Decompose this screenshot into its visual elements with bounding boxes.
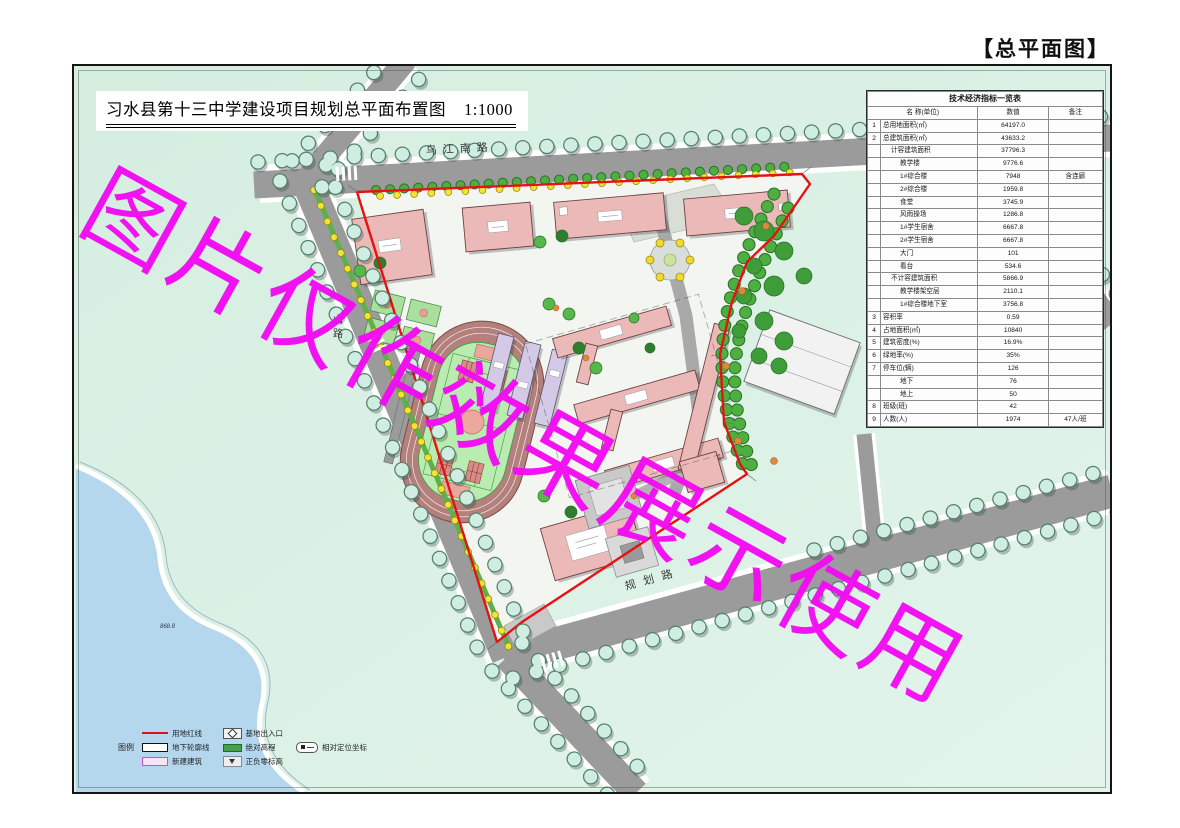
absolute-elevation-symbol — [223, 744, 242, 752]
site-entrance-symbol — [223, 728, 242, 739]
table-title-row: 技术经济指标一览表 — [868, 92, 1103, 107]
table-row: 2#综合楼1959.8 — [868, 183, 1103, 196]
table-row: 地上50 — [868, 388, 1103, 401]
legend-item-zero-level: 正负零标高 — [223, 754, 284, 768]
table-row: 1总用地面积(㎡)64197.0 — [868, 119, 1103, 132]
legend-title: 图例 — [118, 742, 134, 753]
table-row: 教学楼架空层2110.1 — [868, 286, 1103, 299]
legend-item-site-entrance: 基地出入口 — [223, 726, 284, 740]
table-row: 计容建筑面积37796.3 — [868, 145, 1103, 158]
indicator-table-body: 技术经济指标一览表 名 称(单位) 数值 备注 1总用地面积(㎡)64197.0… — [868, 92, 1103, 427]
legend-item-red-line: 用地红线 — [142, 726, 210, 740]
table-row: 不计容建筑面积5866.9 — [868, 273, 1103, 286]
table-row: 2#学生宿舍6667.8 — [868, 234, 1103, 247]
table-row: 教学楼9776.6 — [868, 158, 1103, 171]
legend-column-3: 相对定位坐标 — [296, 740, 367, 754]
legend: 图例 用地红线地下轮廓线新建建筑 基地出入口绝对高程正负零标高 相对定位坐标 — [118, 726, 380, 768]
zero-level-symbol — [223, 756, 242, 767]
table-title: 技术经济指标一览表 — [868, 92, 1103, 107]
header-name: 名 称(单位) — [868, 107, 978, 120]
table-row: 1#学生宿舍6667.8 — [868, 222, 1103, 235]
table-row: 7停车位(辆)126 — [868, 362, 1103, 375]
red-line-symbol — [142, 728, 168, 738]
relative-coordinate-symbol — [296, 742, 318, 753]
title-underline-1 — [106, 124, 516, 125]
legend-item-label: 地下轮廓线 — [172, 742, 210, 753]
legend-item-label: 新建建筑 — [172, 756, 202, 767]
table-row: 8班级(班)42 — [868, 401, 1103, 414]
lake-elevation-label: 868.8 — [160, 624, 176, 630]
legend-item-underground-outline: 地下轮廓线 — [142, 740, 210, 754]
legend-item-label: 基地出入口 — [246, 728, 284, 739]
page-title: 【总平面图】 — [972, 33, 1110, 63]
table-row: 地下76 — [868, 375, 1103, 388]
title-underline-2 — [106, 127, 516, 128]
drawing-title: 习水县第十三中学建设项目规划总平面布置图 — [106, 100, 446, 119]
table-row: 3容积率0.59 — [868, 311, 1103, 324]
table-row: 4占地面积(㎡)10840 — [868, 324, 1103, 337]
table-row: 看台534.6 — [868, 260, 1103, 273]
road-label-left: 山路 — [331, 314, 343, 342]
table-row: 风雨操场1286.8 — [868, 209, 1103, 222]
legend-item-new-building: 新建建筑 — [142, 754, 210, 768]
table-row: 1#综合楼7948含连廊 — [868, 170, 1103, 183]
indicator-table: 技术经济指标一览表 名 称(单位) 数值 备注 1总用地面积(㎡)64197.0… — [866, 90, 1104, 428]
underground-outline-symbol — [142, 743, 168, 752]
legend-column-2: 基地出入口绝对高程正负零标高 — [223, 726, 284, 768]
legend-item-absolute-elevation: 绝对高程 — [223, 740, 284, 754]
drawing-title-block: 习水县第十三中学建设项目规划总平面布置图1:1000 — [96, 91, 528, 131]
table-row: 大门101 — [868, 247, 1103, 260]
legend-item-label: 正负零标高 — [246, 756, 284, 767]
table-row: 食堂3745.9 — [868, 196, 1103, 209]
header-value: 数值 — [978, 107, 1048, 120]
legend-item-label: 相对定位坐标 — [322, 742, 367, 753]
drawing-scale: 1:1000 — [464, 100, 513, 119]
table-row: 9人数(人)197447人/班 — [868, 414, 1103, 427]
drawing-frame: 868.8 — [72, 64, 1112, 794]
legend-item-relative-coordinate: 相对定位坐标 — [296, 740, 367, 754]
header-remark: 备注 — [1048, 107, 1102, 120]
legend-item-label: 绝对高程 — [246, 742, 276, 753]
building-dorm-a — [462, 202, 537, 255]
drawing-sheet: 【总平面图】 868.8 — [0, 0, 1180, 828]
table-row: 5建筑密度(%)16.9% — [868, 337, 1103, 350]
new-building-symbol — [142, 757, 168, 766]
table-row: 1#综合楼地下室3756.8 — [868, 298, 1103, 311]
table-header-row: 名 称(单位) 数值 备注 — [868, 107, 1103, 120]
table-row: 2总建筑面积(㎡)43633.2 — [868, 132, 1103, 145]
legend-item-label: 用地红线 — [172, 728, 202, 739]
legend-column-1: 用地红线地下轮廓线新建建筑 — [142, 726, 210, 768]
table-row: 6绿地率(%)35% — [868, 350, 1103, 363]
